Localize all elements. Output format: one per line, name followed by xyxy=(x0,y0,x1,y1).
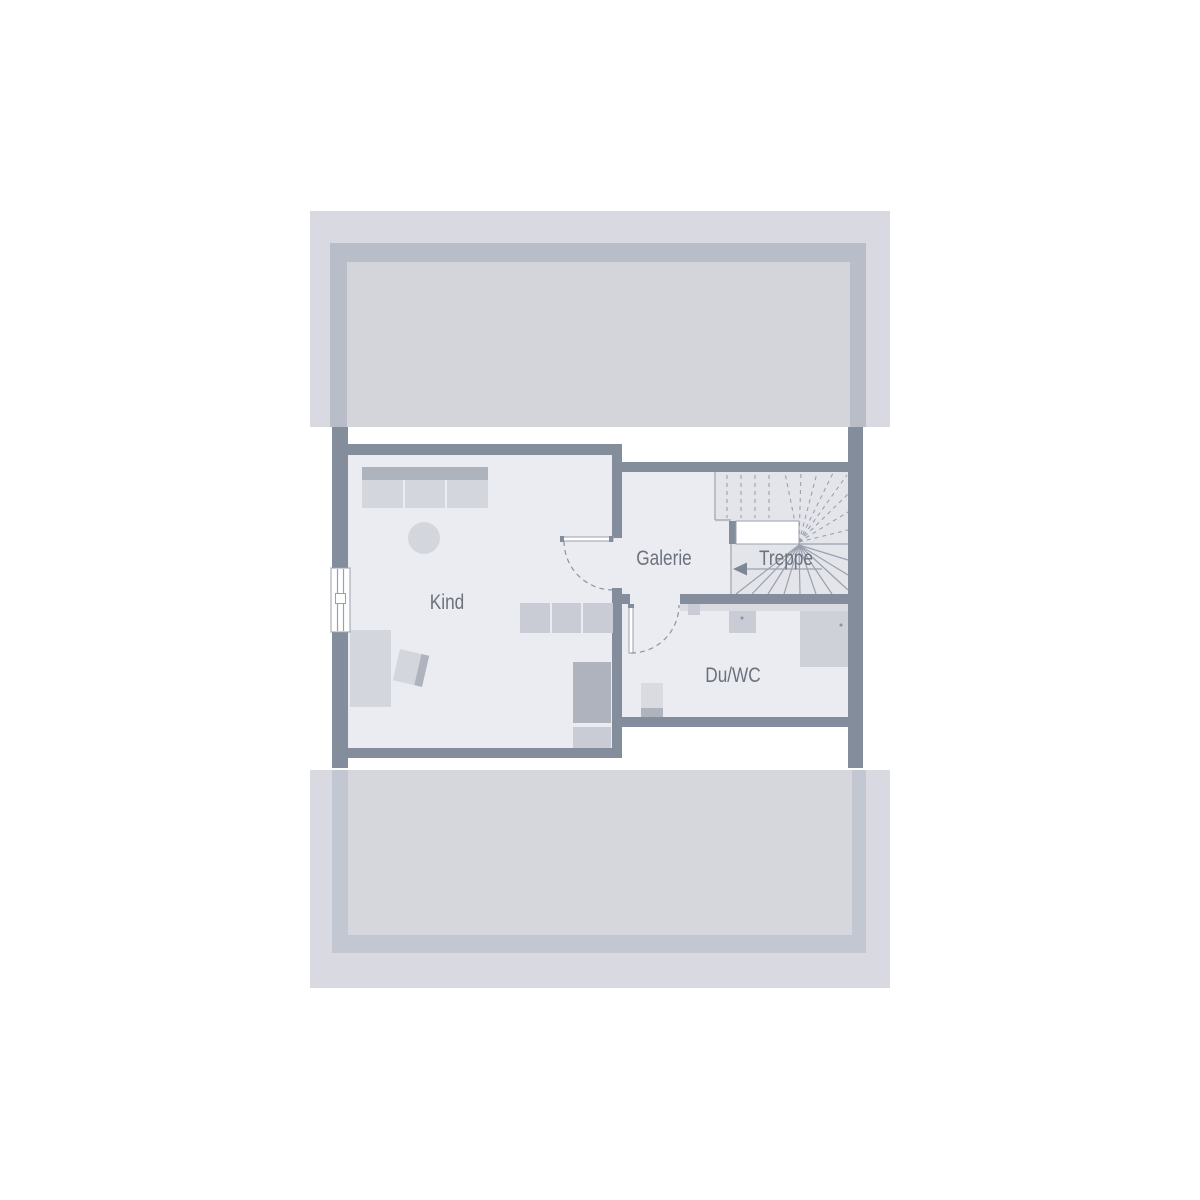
wall-right xyxy=(848,427,863,768)
wall-kind-right-lower xyxy=(612,588,622,758)
counter-ledge xyxy=(680,604,848,611)
roof-bottom xyxy=(310,770,890,988)
stool xyxy=(408,522,440,554)
roof-top xyxy=(310,211,890,427)
duct-niche xyxy=(688,604,700,615)
shelf xyxy=(520,603,613,633)
toilet xyxy=(641,683,663,717)
sink xyxy=(729,611,756,633)
room-label-kind: Kind xyxy=(430,591,464,615)
room-label-galerie: Galerie xyxy=(636,547,692,571)
cabinet xyxy=(573,662,611,748)
stair-break-wall-stub xyxy=(729,521,736,544)
floorplan-canvas: Kind Galerie Treppe Du/WC xyxy=(0,0,1200,1200)
room-label-treppe: Treppe xyxy=(759,547,813,571)
floorplan-drawing xyxy=(0,0,1200,1200)
bed xyxy=(350,630,391,707)
wall-galerie-top xyxy=(622,462,848,472)
wall-kind-top xyxy=(347,444,612,455)
wall-duwc-door-jamb xyxy=(622,594,630,604)
wall-duwc-bottom xyxy=(622,717,862,727)
wall-kind-bottom xyxy=(332,748,622,758)
wall-kind-right-upper xyxy=(612,444,622,538)
wardrobe xyxy=(362,467,488,508)
stair-break-bar xyxy=(736,521,799,544)
wall-duwc-top xyxy=(680,594,848,604)
window-left-icon xyxy=(331,568,350,632)
room-label-duwc: Du/WC xyxy=(705,664,760,688)
staircase xyxy=(715,472,848,594)
shower xyxy=(800,611,848,667)
